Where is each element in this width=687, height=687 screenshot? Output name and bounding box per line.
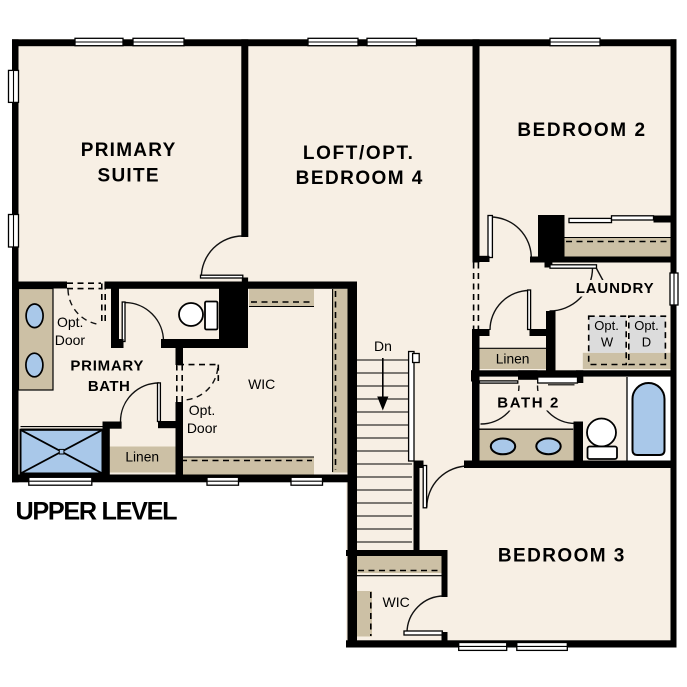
- svg-text:Door: Door: [187, 420, 218, 436]
- svg-text:Opt.: Opt.: [594, 318, 619, 333]
- svg-text:WIC: WIC: [382, 594, 409, 610]
- svg-text:LAUNDRY: LAUNDRY: [576, 280, 654, 297]
- svg-text:Door: Door: [55, 332, 86, 348]
- svg-text:Linen: Linen: [496, 352, 530, 367]
- svg-text:BEDROOM 3: BEDROOM 3: [498, 545, 624, 566]
- svg-text:Opt.: Opt.: [189, 402, 215, 418]
- svg-text:PRIMARY: PRIMARY: [70, 358, 143, 375]
- svg-text:SUITE: SUITE: [98, 166, 159, 187]
- svg-text:D: D: [642, 334, 651, 349]
- svg-text:W: W: [601, 334, 614, 349]
- svg-text:BATH 2: BATH 2: [497, 395, 558, 412]
- svg-text:Linen: Linen: [125, 450, 159, 465]
- svg-text:BEDROOM 2: BEDROOM 2: [517, 120, 645, 141]
- svg-text:WIC: WIC: [248, 376, 275, 392]
- svg-text:UPPER LEVEL: UPPER LEVEL: [16, 498, 178, 526]
- svg-text:Opt.: Opt.: [57, 314, 83, 330]
- svg-text:Dn: Dn: [374, 338, 392, 354]
- svg-text:BATH: BATH: [88, 378, 130, 395]
- svg-text:Opt.: Opt.: [634, 318, 659, 333]
